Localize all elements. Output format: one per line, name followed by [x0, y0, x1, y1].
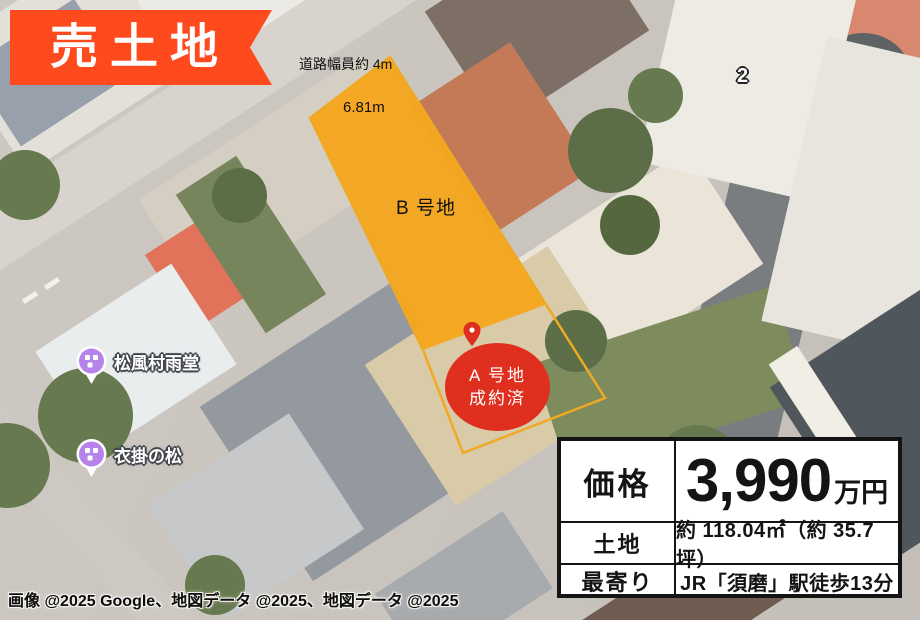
frontage-note: 6.81m: [343, 99, 385, 116]
poi-matsukaze-murasamedo: 松風村雨堂: [75, 345, 199, 385]
parcel-a-sold-badge: A 号地 成約済: [445, 343, 550, 431]
price-table: 価格 3,990 万円 土地 約 118.04㎡（約 35.7坪） 最寄り JR…: [557, 437, 902, 598]
sold-badge-parcel: A 号地: [469, 367, 526, 384]
road-width-note: 道路幅員約 4m: [299, 54, 392, 74]
table-row: 土地 約 118.04㎡（約 35.7坪）: [561, 521, 898, 563]
land-label: 土地: [561, 523, 676, 563]
table-row: 最寄り JR「須磨」駅徒歩13分: [561, 563, 898, 597]
for-sale-banner-label: 売土地: [10, 24, 230, 72]
nearest-station-label: 最寄り: [561, 565, 676, 597]
poi-label: 松風村雨堂: [114, 349, 199, 374]
map-attribution: 画像 @2025 Google、地図データ @2025、地図データ @2025: [8, 587, 458, 611]
parcel-b-label: B 号地: [396, 193, 456, 220]
aerial-map: 道路幅員約 4m 6.81m B 号地 2 松風村雨堂: [0, 0, 920, 620]
poi-kinukake-no-matsu: 衣掛の松: [75, 438, 182, 478]
price-label: 価格: [561, 441, 676, 521]
poi-label: 衣掛の松: [114, 442, 182, 467]
table-row: 価格 3,990 万円: [561, 441, 898, 521]
sold-badge-status: 成約済: [469, 390, 526, 407]
price-amount: 3,990: [686, 451, 831, 511]
shrine-pin-icon: [75, 438, 108, 478]
land-area-value: 約 118.04㎡（約 35.7坪）: [676, 523, 898, 563]
nearest-station-value: JR「須磨」駅徒歩13分: [676, 565, 898, 597]
shrine-pin-icon: [75, 345, 108, 385]
block-number-label: 2: [737, 65, 748, 88]
for-sale-banner: 売土地: [10, 10, 272, 85]
price-value-cell: 3,990 万円: [676, 441, 898, 521]
price-unit: 万円: [834, 453, 888, 510]
